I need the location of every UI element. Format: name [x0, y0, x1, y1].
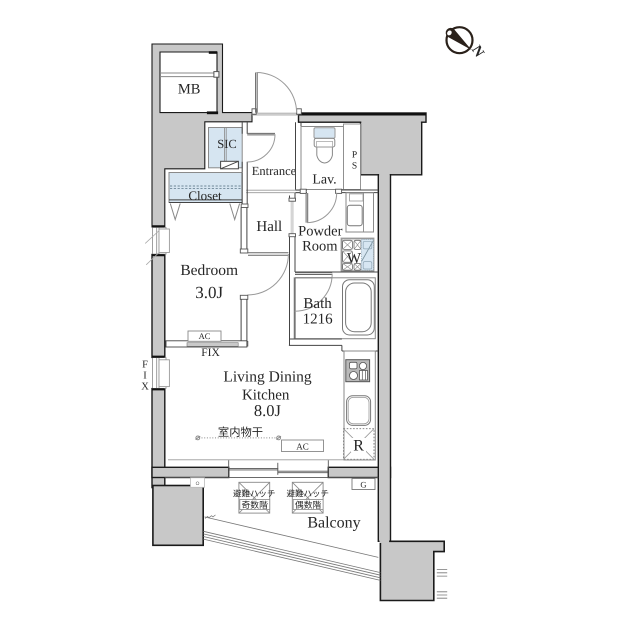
- svg-text:P: P: [352, 151, 357, 161]
- svg-text:Lav.: Lav.: [312, 173, 336, 188]
- svg-text:避難ハッチ: 避難ハッチ: [286, 489, 329, 499]
- svg-text:3.0J: 3.0J: [195, 283, 223, 302]
- svg-text:Closet: Closet: [188, 188, 222, 203]
- svg-text:1216: 1216: [303, 312, 334, 328]
- svg-text:MB: MB: [178, 82, 201, 98]
- svg-text:S: S: [352, 162, 357, 172]
- svg-text:AC: AC: [199, 331, 211, 341]
- svg-text:Balcony: Balcony: [307, 515, 360, 532]
- svg-text:F: F: [142, 360, 148, 371]
- svg-text:Entrance: Entrance: [252, 164, 297, 178]
- svg-text:X: X: [141, 382, 149, 393]
- svg-text:G: G: [360, 480, 366, 490]
- svg-text:Hall: Hall: [256, 219, 282, 235]
- svg-text:SIC: SIC: [217, 137, 236, 151]
- svg-text:Powder: Powder: [298, 224, 342, 240]
- svg-text:Bath: Bath: [303, 296, 332, 312]
- svg-text:Room: Room: [302, 239, 338, 255]
- svg-text:I: I: [143, 371, 147, 382]
- svg-text:AC: AC: [296, 441, 309, 451]
- svg-text:R: R: [353, 438, 364, 455]
- svg-text:避難ハッチ: 避難ハッチ: [233, 489, 276, 499]
- svg-text:Living Dining: Living Dining: [223, 369, 312, 386]
- svg-text:FIX: FIX: [201, 347, 220, 359]
- svg-text:○: ○: [195, 479, 200, 488]
- svg-text:8.0J: 8.0J: [254, 401, 282, 420]
- svg-text:奇数階: 奇数階: [241, 500, 268, 510]
- svg-text:室内物干: 室内物干: [218, 426, 263, 439]
- svg-text:Bedroom: Bedroom: [180, 262, 238, 279]
- svg-text:W: W: [347, 251, 362, 267]
- svg-text:偶数階: 偶数階: [295, 500, 322, 510]
